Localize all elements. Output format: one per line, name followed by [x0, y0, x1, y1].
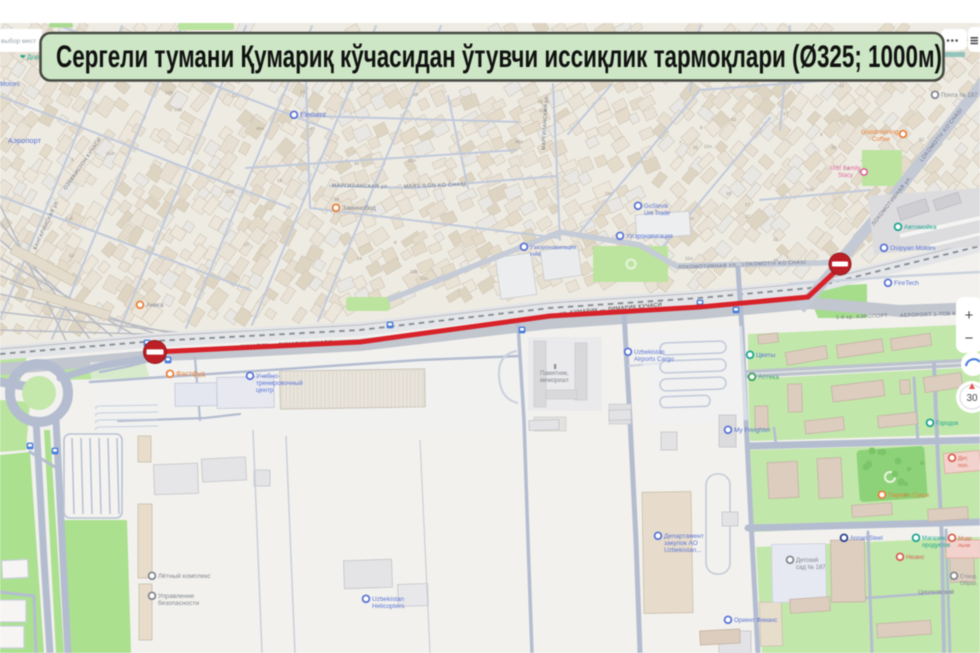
svg-text:−: −	[965, 330, 974, 347]
svg-text:Лётный комплекс: Лётный комплекс	[158, 572, 211, 580]
svg-text:Uzbekistan: Uzbekistan	[372, 596, 405, 603]
svg-text:29: 29	[831, 145, 837, 150]
svg-text:My Freighter: My Freighter	[734, 427, 771, 434]
svg-text:31: 31	[773, 237, 779, 242]
svg-text:Goodmorning: Goodmorning	[861, 129, 899, 136]
svg-text:центр: центр	[256, 387, 274, 394]
svg-text:НАК: НАК	[530, 252, 542, 258]
svg-text:Почта № 187: Почта № 187	[941, 92, 978, 99]
svg-text:Памятник,: Памятник,	[540, 371, 569, 377]
svg-text:+: +	[965, 307, 974, 324]
svg-text:Uzbekistan...: Uzbekistan...	[664, 547, 702, 554]
svg-text:Annan Steel: Annan Steel	[850, 536, 883, 542]
svg-text:46A: 46A	[515, 139, 524, 144]
svg-text:11B: 11B	[410, 269, 418, 274]
svg-text:52: 52	[731, 117, 737, 122]
svg-text:23A: 23A	[685, 256, 694, 261]
svg-text:Motors: Motors	[0, 81, 21, 88]
svg-text:23A: 23A	[226, 189, 235, 194]
svg-text:12: 12	[300, 89, 306, 94]
svg-text:пол.: пол.	[958, 463, 969, 469]
svg-text:31: 31	[693, 145, 699, 150]
svg-text:Нюанс: Нюанс	[906, 555, 924, 561]
svg-text:льни: льни	[958, 543, 970, 549]
svg-text:сад № 187: сад № 187	[796, 564, 826, 571]
svg-text:23A: 23A	[106, 151, 115, 156]
svg-text:Городок: Городок	[936, 421, 959, 427]
svg-text:Узаэронавигация: Узаэронавигация	[530, 245, 576, 251]
svg-text:23A: 23A	[408, 158, 417, 163]
svg-text:30: 30	[966, 393, 978, 404]
svg-text:23A: 23A	[420, 276, 429, 281]
svg-text:40: 40	[354, 161, 360, 166]
svg-text:Urb! Family: Urb! Family	[830, 166, 861, 172]
svg-text:15: 15	[726, 191, 732, 196]
svg-text:40: 40	[334, 197, 340, 202]
svg-text:Автомойка: Автомойка	[904, 223, 937, 231]
svg-text:11B: 11B	[165, 90, 173, 95]
svg-text:11B: 11B	[174, 107, 182, 112]
svg-text:Образ.: Образ.	[960, 581, 978, 587]
svg-text:52: 52	[919, 137, 925, 142]
svg-text:Цветы: Цветы	[756, 352, 776, 359]
svg-text:7: 7	[679, 140, 682, 145]
svg-text:17: 17	[745, 214, 751, 219]
svg-text:Учебно-: Учебно-	[256, 372, 280, 380]
svg-text:Фастфуд: Фастфуд	[176, 371, 205, 378]
svg-text:продуктов: продуктов	[922, 543, 950, 549]
svg-text:11B: 11B	[806, 187, 814, 192]
svg-text:17: 17	[745, 202, 751, 207]
svg-text:46A: 46A	[256, 126, 265, 131]
svg-text:выбор мест: выбор мест	[1, 37, 36, 45]
svg-text:40: 40	[310, 126, 316, 131]
svg-text:8: 8	[700, 125, 703, 130]
svg-text:Анига: Анига	[146, 302, 164, 309]
svg-text:Детский: Детский	[796, 557, 818, 564]
svg-text:Stacy: Stacy	[838, 173, 853, 179]
svg-text:Паркент Сукси: Паркент Сукси	[888, 493, 929, 499]
svg-text:8: 8	[820, 132, 823, 137]
svg-text:Магазин: Магазин	[922, 536, 945, 542]
svg-text:Аптека: Аптека	[758, 374, 779, 381]
svg-text:тренировочный: тренировочный	[256, 379, 303, 387]
svg-text:Element: Element	[300, 112, 326, 119]
svg-text:Coffee: Coffee	[872, 136, 891, 143]
svg-text:Модо: Модо	[958, 536, 972, 542]
svg-text:Аэропорт: Аэропорт	[8, 136, 42, 145]
svg-text:17: 17	[783, 111, 789, 116]
svg-text:52: 52	[69, 253, 75, 258]
svg-text:Airports Cargo: Airports Cargo	[634, 356, 674, 363]
svg-text:8: 8	[394, 240, 397, 245]
svg-text:15: 15	[277, 178, 283, 183]
svg-text:17: 17	[244, 242, 250, 247]
svg-text:Заминобод: Заминобод	[342, 204, 376, 212]
svg-text:Циолковский: Циолковский	[918, 589, 954, 596]
svg-text:закупок АО: закупок АО	[664, 540, 698, 547]
svg-text:Osipyan Motors: Osipyan Motors	[890, 245, 936, 252]
svg-text:Uzbekistan: Uzbekistan	[634, 349, 665, 356]
svg-text:Станд.: Станд.	[960, 574, 978, 580]
svg-text:мемориал: мемориал	[540, 378, 569, 384]
svg-text:12: 12	[839, 83, 845, 88]
svg-text:Сергели тумани Қумариқ кўчасид: Сергели тумани Қумариқ кўчасидан ўтувчи …	[56, 38, 942, 74]
svg-text:23A: 23A	[704, 144, 713, 149]
svg-text:Uni Trade: Uni Trade	[644, 211, 671, 217]
svg-text:3: 3	[71, 157, 74, 162]
svg-text:Helicopters: Helicopters	[372, 603, 405, 610]
svg-text:24: 24	[357, 256, 363, 261]
svg-text:Департамент: Департамент	[664, 533, 704, 540]
svg-text:FireTech: FireTech	[894, 280, 919, 287]
svg-text:безопасности: безопасности	[158, 599, 199, 607]
svg-text:Дет.: Дет.	[958, 456, 969, 462]
svg-text:Ориент Финанс: Ориент Финанс	[734, 618, 777, 624]
svg-text:Управление: Управление	[158, 593, 195, 600]
svg-text:GoStevik: GoStevik	[644, 204, 669, 210]
svg-text:Узгэронавигация: Узгэронавигация	[626, 234, 673, 240]
svg-text:❤ Дор: ❤ Дор	[20, 54, 39, 61]
svg-text:МАРГИЛАНСКАЯ ул.: МАРГИЛАНСКАЯ ул.	[332, 183, 389, 190]
